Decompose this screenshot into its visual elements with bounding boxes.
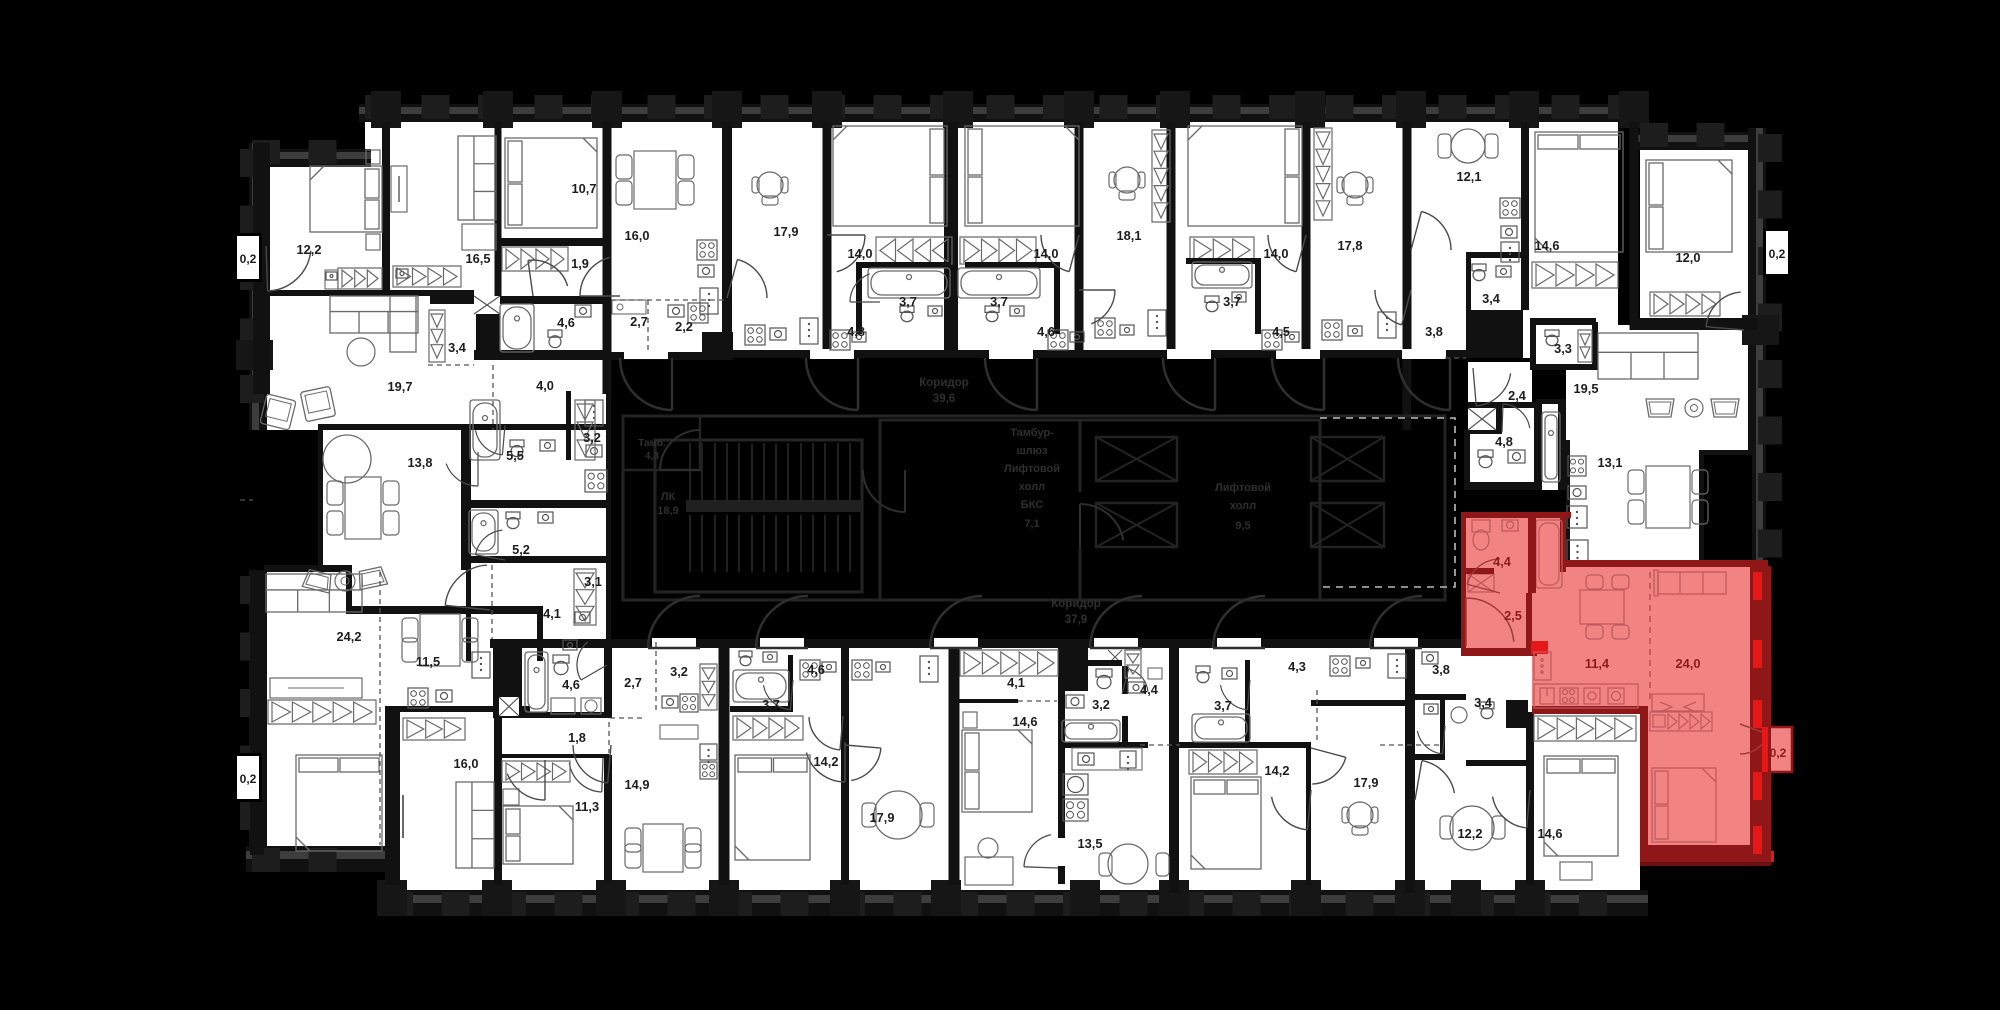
- svg-text:11,4: 11,4: [1585, 656, 1610, 671]
- svg-text:17,9: 17,9: [774, 224, 799, 239]
- svg-text:шлюз: шлюз: [1016, 445, 1048, 457]
- svg-text:4,0: 4,0: [536, 378, 554, 393]
- svg-text:12,0: 12,0: [1676, 250, 1701, 265]
- svg-text:Лифтовой: Лифтовой: [1004, 463, 1060, 475]
- svg-text:4,4: 4,4: [1140, 682, 1159, 697]
- svg-text:4,3: 4,3: [645, 451, 659, 462]
- svg-text:3,7: 3,7: [762, 697, 780, 712]
- svg-text:13,8: 13,8: [408, 455, 433, 470]
- svg-text:3,7: 3,7: [899, 294, 917, 309]
- svg-text:4,6: 4,6: [557, 315, 575, 330]
- svg-text:3,4: 3,4: [1482, 291, 1501, 306]
- svg-text:10,7: 10,7: [572, 181, 597, 196]
- svg-text:14,2: 14,2: [1265, 763, 1290, 778]
- svg-text:Коридор: Коридор: [1051, 598, 1101, 610]
- svg-text:2,5: 2,5: [1504, 608, 1522, 623]
- svg-text:5,5: 5,5: [506, 448, 524, 463]
- svg-text:13,5: 13,5: [1078, 836, 1103, 851]
- svg-text:4,3: 4,3: [1288, 659, 1306, 674]
- svg-text:4,5: 4,5: [1272, 324, 1290, 339]
- svg-text:3,8: 3,8: [1425, 324, 1443, 339]
- svg-text:4,6: 4,6: [807, 662, 825, 677]
- svg-text:7,1: 7,1: [1024, 518, 1039, 530]
- svg-text:24,2: 24,2: [337, 629, 362, 644]
- svg-text:3,3: 3,3: [1554, 341, 1572, 356]
- svg-text:4,6: 4,6: [1037, 324, 1055, 339]
- svg-text:холл: холл: [1019, 481, 1045, 493]
- svg-text:13,1: 13,1: [1598, 455, 1623, 470]
- svg-text:5,2: 5,2: [512, 542, 530, 557]
- svg-text:0,2: 0,2: [240, 772, 257, 786]
- svg-text:Коридор: Коридор: [919, 377, 969, 389]
- svg-text:16,0: 16,0: [454, 756, 479, 771]
- svg-text:Тамб.: Тамб.: [638, 437, 666, 449]
- svg-text:19,5: 19,5: [1574, 381, 1599, 396]
- svg-text:14,0: 14,0: [848, 246, 873, 261]
- svg-text:14,6: 14,6: [1538, 826, 1563, 841]
- svg-text:2,7: 2,7: [624, 675, 642, 690]
- svg-text:3,2: 3,2: [670, 664, 688, 679]
- svg-text:Тамбур-: Тамбур-: [1010, 427, 1054, 439]
- svg-text:2,2: 2,2: [675, 319, 693, 334]
- svg-text:4,8: 4,8: [1495, 434, 1513, 449]
- svg-text:12,1: 12,1: [1457, 169, 1482, 184]
- svg-text:БКС: БКС: [1021, 499, 1043, 511]
- svg-text:14,6: 14,6: [1535, 238, 1560, 253]
- svg-text:24,0: 24,0: [1676, 656, 1701, 671]
- svg-text:16,0: 16,0: [625, 228, 650, 243]
- svg-text:2,4: 2,4: [1508, 388, 1527, 403]
- svg-text:18,1: 18,1: [1117, 228, 1142, 243]
- svg-text:4,8: 4,8: [847, 324, 865, 339]
- svg-text:1,8: 1,8: [568, 730, 586, 745]
- svg-text:3,2: 3,2: [583, 430, 601, 445]
- svg-text:14,0: 14,0: [1264, 246, 1289, 261]
- svg-text:3,1: 3,1: [584, 574, 602, 589]
- svg-text:3,4: 3,4: [448, 340, 467, 355]
- svg-text:ЛК: ЛК: [661, 491, 676, 503]
- svg-text:12,2: 12,2: [1458, 826, 1483, 841]
- svg-text:11,5: 11,5: [416, 654, 440, 669]
- svg-text:4,6: 4,6: [562, 677, 580, 692]
- svg-text:9,5: 9,5: [1235, 520, 1250, 532]
- svg-text:3,2: 3,2: [1092, 697, 1110, 712]
- svg-text:2,7: 2,7: [630, 314, 648, 329]
- svg-text:11,3: 11,3: [575, 799, 599, 814]
- svg-text:3,7: 3,7: [1214, 698, 1232, 713]
- svg-text:4,4: 4,4: [1493, 554, 1512, 569]
- svg-text:4,1: 4,1: [1007, 675, 1025, 690]
- svg-text:0,2: 0,2: [1769, 247, 1786, 261]
- svg-text:1,9: 1,9: [571, 256, 589, 271]
- svg-text:12,2: 12,2: [297, 242, 322, 257]
- svg-text:18,9: 18,9: [657, 505, 678, 517]
- svg-text:19,7: 19,7: [388, 379, 413, 394]
- svg-text:37,9: 37,9: [1065, 614, 1087, 626]
- svg-text:14,9: 14,9: [625, 777, 650, 792]
- svg-text:17,9: 17,9: [870, 810, 895, 825]
- svg-text:0,2: 0,2: [1770, 746, 1787, 760]
- svg-text:3,8: 3,8: [1432, 662, 1450, 677]
- svg-text:Лифтовой: Лифтовой: [1215, 482, 1271, 494]
- svg-text:14,2: 14,2: [814, 754, 839, 769]
- svg-text:14,0: 14,0: [1034, 246, 1059, 261]
- svg-text:4,1: 4,1: [543, 606, 561, 621]
- svg-text:14,6: 14,6: [1013, 714, 1038, 729]
- svg-text:17,8: 17,8: [1338, 238, 1363, 253]
- svg-text:3,4: 3,4: [1474, 695, 1493, 710]
- svg-text:0,2: 0,2: [240, 252, 257, 266]
- svg-text:39,6: 39,6: [933, 393, 955, 405]
- svg-text:16,5: 16,5: [466, 251, 491, 266]
- svg-text:3,7: 3,7: [1223, 294, 1241, 309]
- svg-text:холл: холл: [1230, 500, 1256, 512]
- svg-text:3,7: 3,7: [990, 294, 1008, 309]
- svg-text:17,9: 17,9: [1354, 775, 1379, 790]
